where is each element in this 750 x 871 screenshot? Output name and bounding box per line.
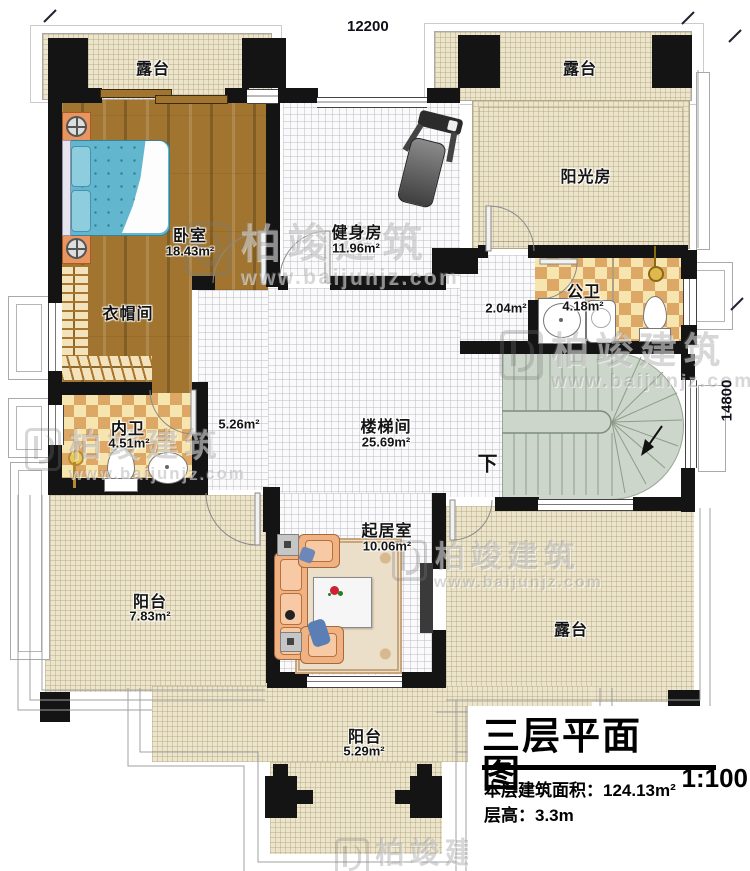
toilet-tank: [104, 478, 138, 492]
flower-decor: [330, 586, 339, 595]
pillow: [71, 190, 91, 232]
towel-ring-icon: [68, 450, 84, 466]
vestibule-area-label: 2.04m²: [485, 301, 526, 316]
bedroom-label: 卧室: [173, 222, 207, 246]
terrace-top-right-label: 露台: [563, 55, 597, 79]
bed-headboard: [62, 140, 71, 236]
floor-area-line: 本层建筑面积：124.13m²: [484, 776, 676, 801]
wardrobe-rack: [62, 265, 88, 359]
pillow: [71, 146, 91, 187]
side-table: [277, 534, 299, 556]
floor-lamp-icon: [285, 610, 295, 620]
lamp-icon: [66, 238, 87, 259]
bedroom-area-label: 18.43m²: [166, 244, 214, 259]
pull-cord-line: [654, 246, 656, 268]
toilet-tank: [639, 328, 671, 342]
ensuite-area-label: 4.51m²: [108, 436, 149, 451]
sunroom-label: 阳光房: [560, 163, 611, 187]
towel-rail: [73, 462, 76, 488]
cloakroom-label: 衣帽间: [102, 300, 153, 324]
dimension-top: 12200: [347, 18, 389, 35]
stair-hall-area-label: 25.69m²: [362, 435, 410, 450]
side-table: [280, 632, 302, 652]
balcony-left-area-label: 7.83m²: [129, 609, 170, 624]
stairs-direction-label: 下: [478, 448, 499, 477]
living-room-label: 起居室: [361, 517, 412, 541]
lamp-icon: [66, 116, 87, 137]
gym-label: 健身房: [331, 219, 382, 243]
gym-area-label: 11.96m²: [332, 241, 380, 256]
sink-drain: [559, 318, 563, 322]
terrace-top-left-label: 露台: [136, 55, 170, 79]
dimension-right: 14800: [718, 380, 735, 422]
terrace-bottom-right-label: 露台: [554, 616, 588, 640]
balcony-bottom-area-label: 5.29m²: [343, 744, 384, 759]
hallway-area-label: 5.26m²: [218, 417, 259, 432]
floor-plan: 柏竣建筑www.baijunjz.com 柏竣建筑www.baijunjz.co…: [0, 0, 750, 871]
sink-drain: [165, 465, 169, 469]
clothes-rod: [62, 356, 152, 380]
pull-cord-icon: [648, 266, 664, 282]
stair-hall-label: 楼梯间: [360, 413, 411, 437]
stairs-direction-arrow: [641, 426, 662, 456]
title-rule: [482, 765, 716, 770]
title-block: 三层平面图 1:100 本层建筑面积：124.13m² 层高：3.3m: [468, 706, 748, 871]
floor-height-line: 层高：3.3m: [484, 801, 574, 826]
living-room-area-label: 10.06m²: [363, 539, 411, 554]
public-bath-area-label: 4.18m²: [562, 299, 603, 314]
toilet-icon: [643, 296, 667, 331]
